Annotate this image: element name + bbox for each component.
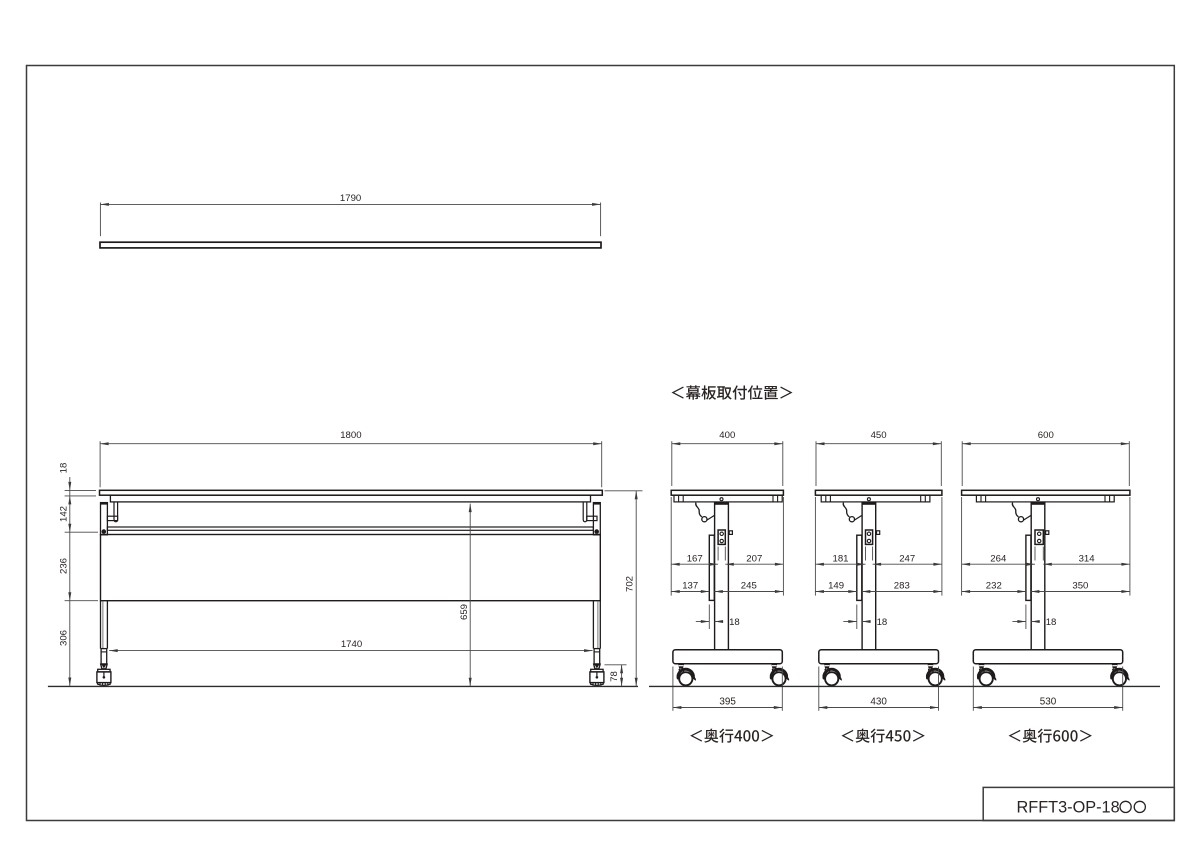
svg-text:283: 283 bbox=[894, 581, 910, 592]
svg-text:142: 142 bbox=[58, 506, 69, 522]
svg-text:1800: 1800 bbox=[340, 430, 361, 441]
svg-text:702: 702 bbox=[624, 576, 635, 592]
svg-text:1740: 1740 bbox=[341, 639, 362, 650]
svg-text:600: 600 bbox=[1038, 430, 1054, 441]
svg-text:450: 450 bbox=[871, 430, 887, 441]
svg-text:350: 350 bbox=[1072, 581, 1088, 592]
svg-text:659: 659 bbox=[459, 604, 470, 620]
svg-text:18: 18 bbox=[729, 617, 740, 628]
svg-text:137: 137 bbox=[682, 581, 698, 592]
svg-text:430: 430 bbox=[870, 696, 887, 707]
svg-text:232: 232 bbox=[986, 581, 1002, 592]
svg-text:400: 400 bbox=[719, 430, 735, 441]
svg-text:264: 264 bbox=[990, 553, 1007, 564]
svg-text:18: 18 bbox=[1046, 617, 1057, 628]
svg-text:18: 18 bbox=[58, 463, 69, 474]
svg-text:18: 18 bbox=[877, 617, 888, 628]
svg-text:167: 167 bbox=[687, 553, 703, 564]
svg-text:1790: 1790 bbox=[340, 193, 361, 204]
svg-text:530: 530 bbox=[1040, 696, 1057, 707]
svg-text:236: 236 bbox=[58, 558, 69, 574]
svg-text:247: 247 bbox=[899, 553, 915, 564]
svg-text:395: 395 bbox=[719, 696, 736, 707]
svg-text:207: 207 bbox=[746, 553, 762, 564]
svg-text:306: 306 bbox=[58, 630, 69, 646]
svg-text:314: 314 bbox=[1079, 553, 1096, 564]
svg-text:RFFT3-OP-18: RFFT3-OP-18 bbox=[1017, 798, 1120, 816]
svg-text:78: 78 bbox=[609, 671, 620, 682]
svg-text:181: 181 bbox=[832, 553, 848, 564]
svg-text:149: 149 bbox=[828, 581, 844, 592]
svg-text:245: 245 bbox=[741, 581, 757, 592]
